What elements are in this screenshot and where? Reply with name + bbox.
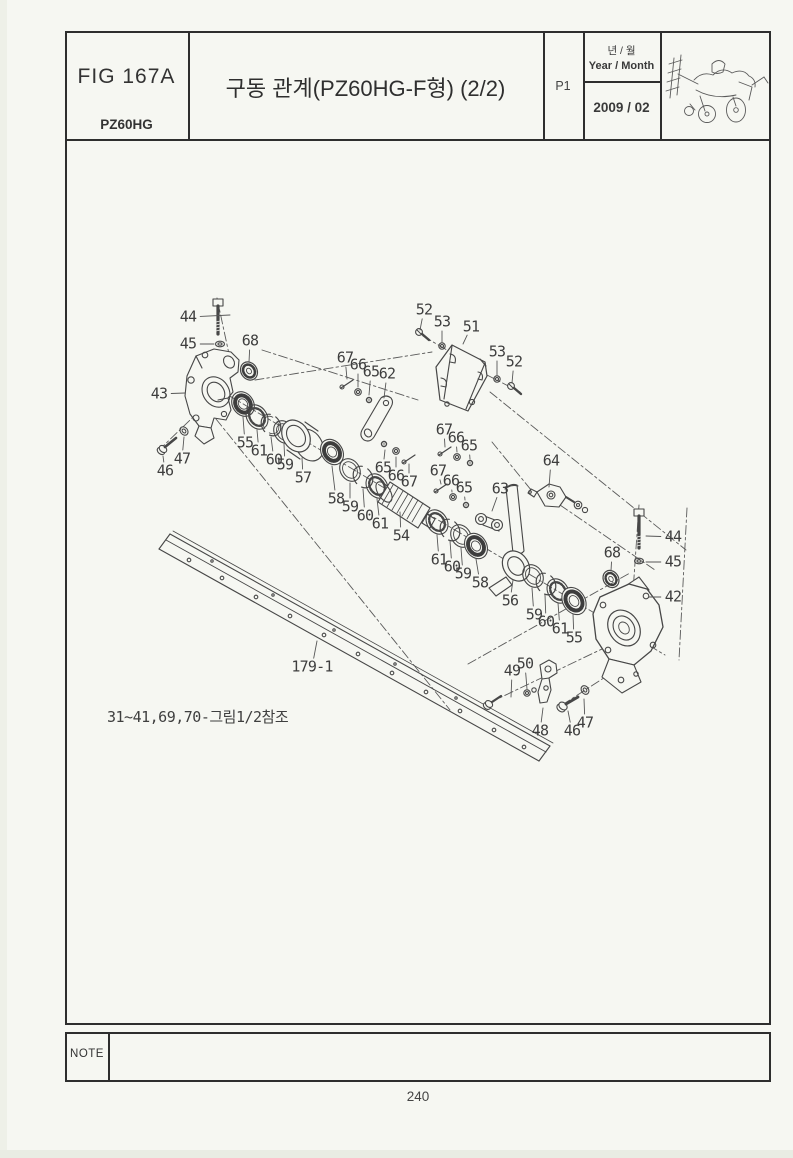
date-label-english: Year / Month (583, 60, 660, 72)
scan-edge-artifact-bottom (0, 1150, 793, 1158)
header-divider-4 (660, 33, 662, 139)
note-box (65, 1032, 771, 1082)
cross-reference-note: 31~41,69,70-그림1/2참조 (107, 706, 288, 727)
note-label: NOTE (65, 1048, 109, 1060)
date-value: 2009 / 02 (583, 100, 660, 115)
page-number: 240 (65, 1089, 771, 1104)
page-title: 구동 관계(PZ60HG-F형) (2/2) (188, 71, 543, 103)
model-code: PZ60HG (65, 117, 188, 132)
parts-catalog-page: FIG 167A PZ60HG 구동 관계(PZ60HG-F형) (2/2) P… (0, 0, 793, 1158)
header-bottom-rule (65, 139, 771, 141)
page-frame (65, 31, 771, 1025)
date-label-korean: 년 / 월 (583, 43, 660, 58)
page-code: P1 (543, 79, 583, 93)
date-cell-divider (583, 81, 660, 83)
figure-id: FIG 167A (65, 65, 188, 89)
